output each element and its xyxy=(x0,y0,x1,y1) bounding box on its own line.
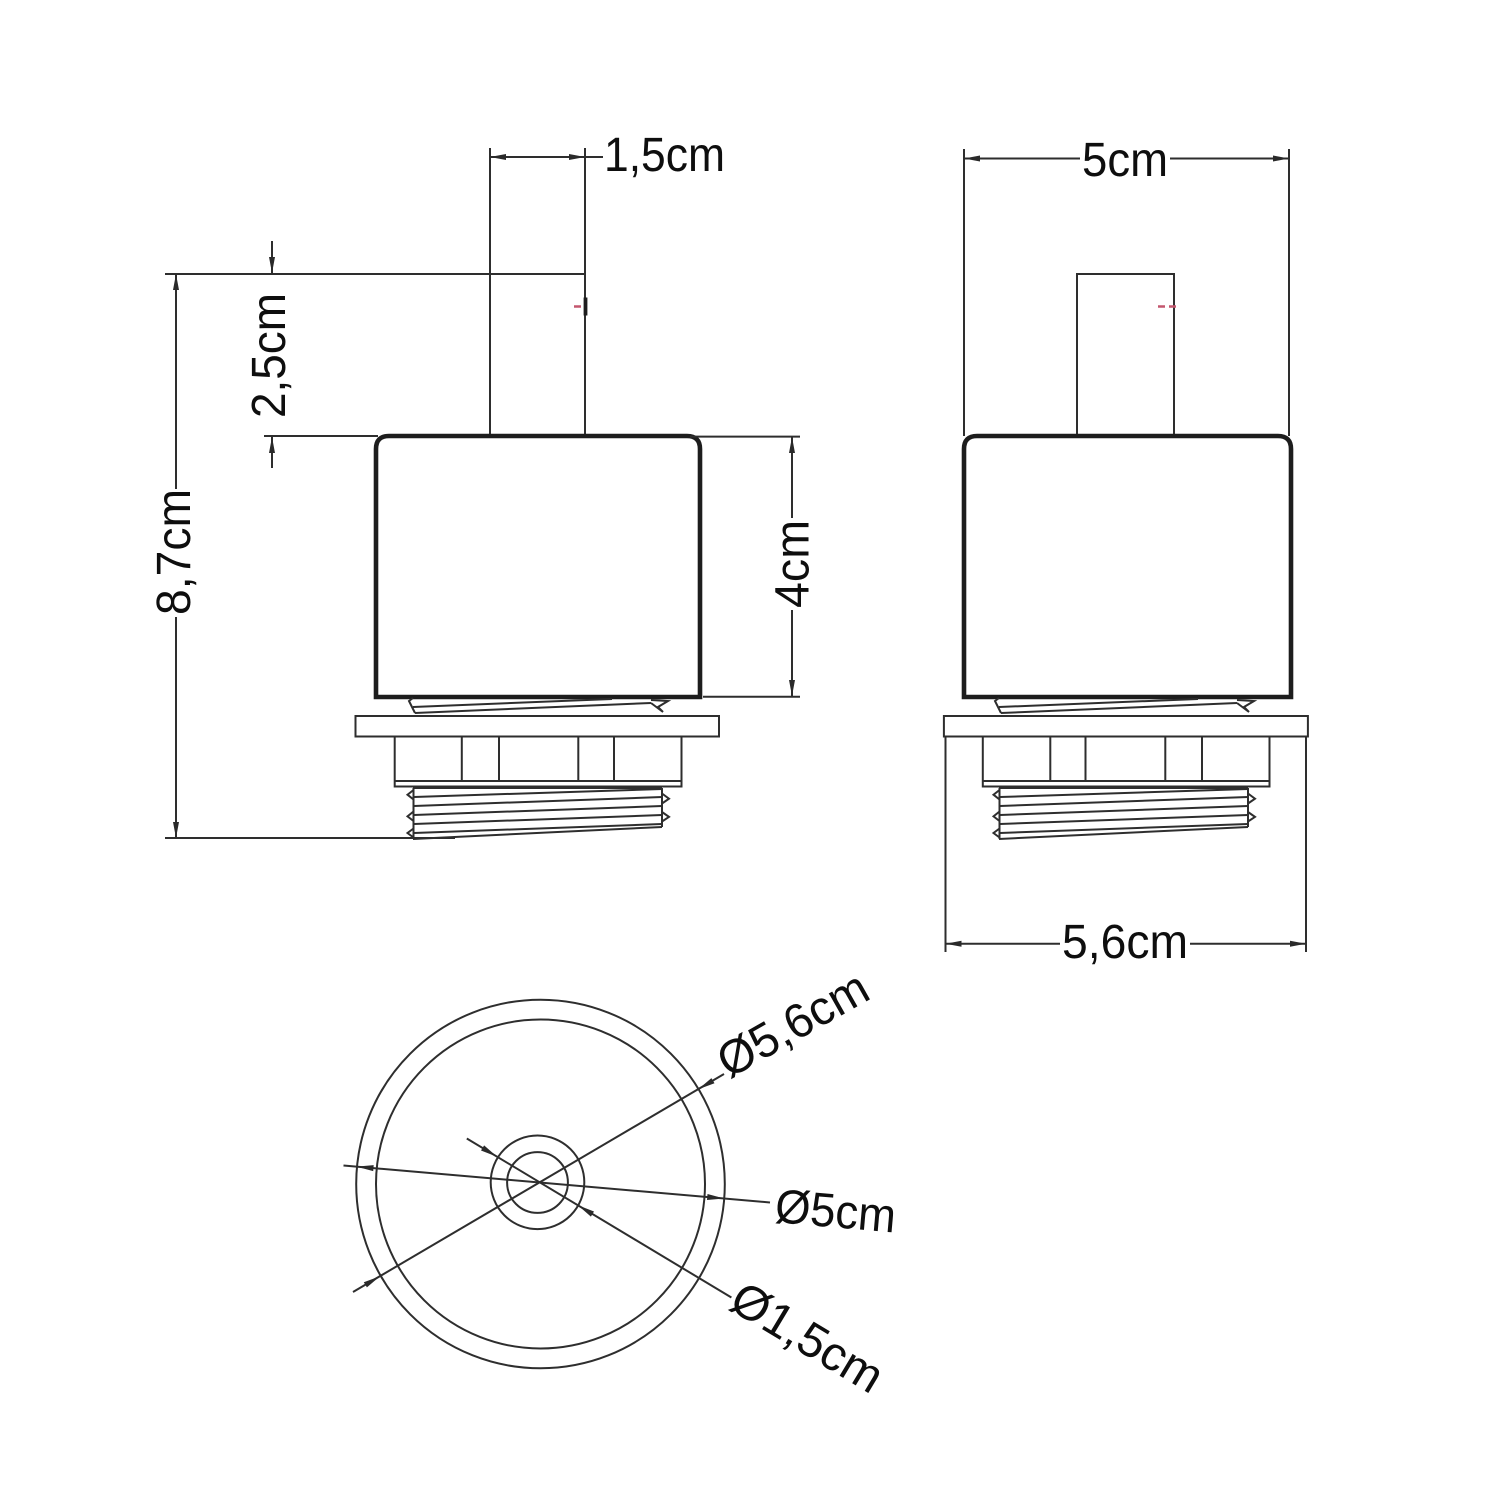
svg-text:5cm: 5cm xyxy=(1082,134,1168,187)
svg-text:2,5cm: 2,5cm xyxy=(243,293,296,418)
svg-text:4cm: 4cm xyxy=(767,520,820,608)
svg-text:8,7cm: 8,7cm xyxy=(148,489,201,615)
svg-text:Ø5cm: Ø5cm xyxy=(773,1180,898,1243)
svg-text:1,5cm: 1,5cm xyxy=(604,129,725,182)
svg-text:5,6cm: 5,6cm xyxy=(1062,916,1188,969)
